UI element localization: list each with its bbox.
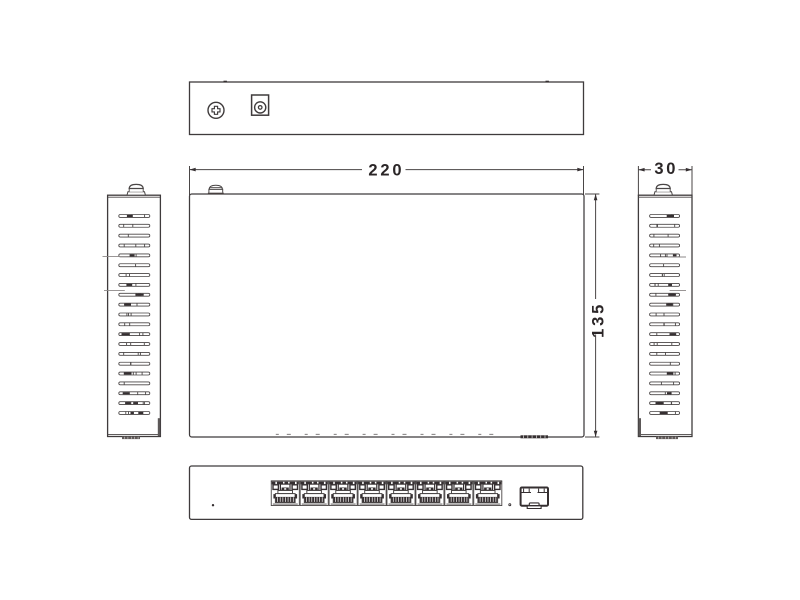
svg-text:220: 220 [368, 162, 404, 180]
svg-text:135: 135 [590, 302, 608, 338]
svg-text:30: 30 [654, 160, 678, 178]
